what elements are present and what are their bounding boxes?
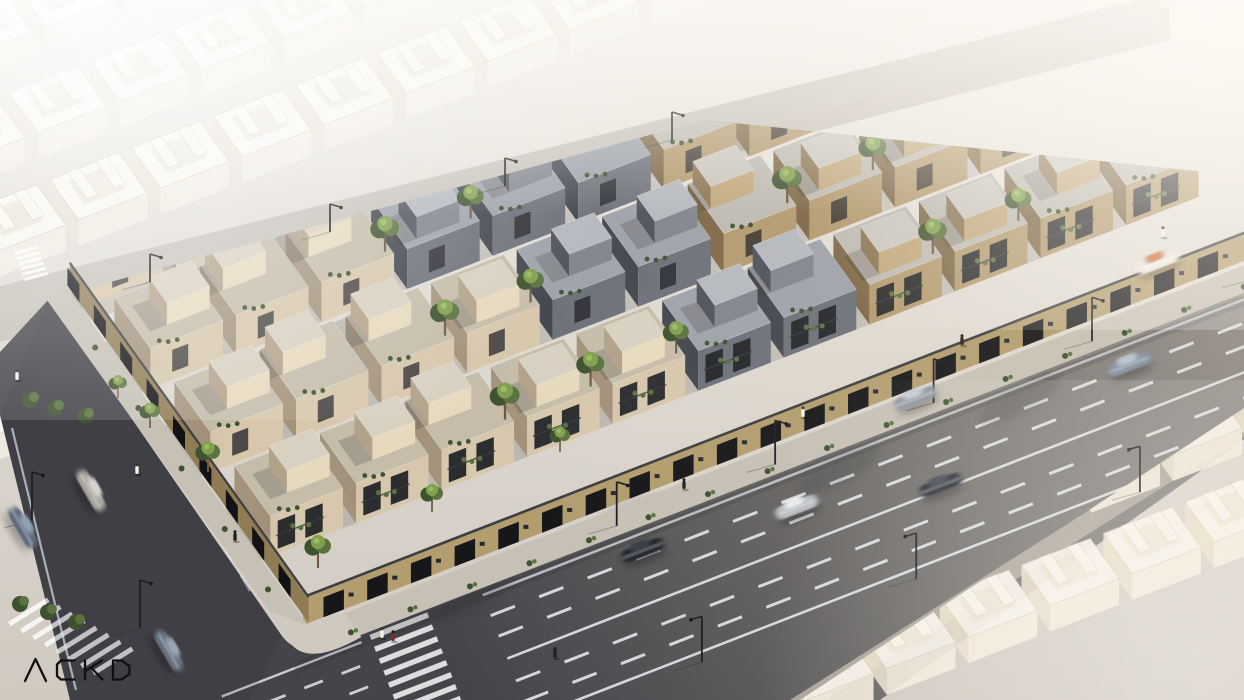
sun-tint (0, 0, 1244, 700)
architectural-render-stage: ACKD (0, 0, 1244, 700)
scene-svg (0, 0, 1244, 700)
